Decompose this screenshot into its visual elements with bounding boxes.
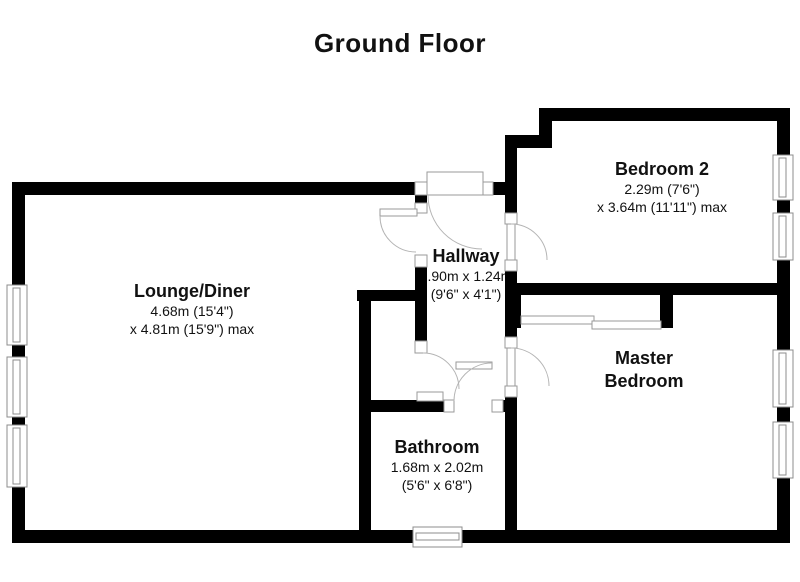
room-dimensions-line2: x 4.81m (15'9") max bbox=[130, 320, 254, 338]
room-name: Bathroom bbox=[391, 437, 484, 458]
window bbox=[773, 213, 793, 260]
room-label-bathroom: Bathroom 1.68m x 2.02m (5'6" x 6'8") bbox=[391, 437, 484, 494]
floor-plan: Ground Floor Lounge/Diner 4.68m (15'4") … bbox=[0, 0, 800, 582]
master-bedroom-door bbox=[505, 337, 549, 397]
window bbox=[7, 357, 27, 417]
window bbox=[773, 155, 793, 200]
window bbox=[773, 350, 793, 407]
bathroom-door bbox=[444, 362, 503, 412]
floor-plan-drawing bbox=[0, 0, 800, 582]
room-name: Lounge/Diner bbox=[130, 281, 254, 302]
room-dimensions-line2: (9'6" x 4'1") bbox=[420, 285, 513, 303]
room-dimensions-line1: 4.68m (15'4") bbox=[130, 302, 254, 320]
room-label-master-bedroom: Master Bedroom bbox=[594, 347, 694, 393]
room-name: Hallway bbox=[420, 246, 513, 267]
cupboard-door bbox=[415, 341, 459, 401]
room-name: Master Bedroom bbox=[594, 347, 694, 393]
room-name: Bedroom 2 bbox=[597, 159, 727, 180]
room-dimensions-line1: 2.29m (7'6") bbox=[597, 180, 727, 198]
window bbox=[773, 422, 793, 478]
room-label-lounge-diner: Lounge/Diner 4.68m (15'4") x 4.81m (15'9… bbox=[130, 281, 254, 338]
room-dimensions-line1: 1.68m x 2.02m bbox=[391, 458, 484, 476]
room-dimensions-line1: 2.90m x 1.24m bbox=[420, 267, 513, 285]
window bbox=[7, 425, 27, 487]
built-in-wardrobe bbox=[521, 316, 661, 329]
plan-title: Ground Floor bbox=[314, 28, 486, 59]
room-dimensions-line2: x 3.64m (11'11") max bbox=[597, 198, 727, 216]
window bbox=[413, 527, 462, 547]
entry-door bbox=[415, 172, 493, 249]
room-label-hallway: Hallway 2.90m x 1.24m (9'6" x 4'1") bbox=[420, 246, 513, 303]
room-dimensions-line2: (5'6" x 6'8") bbox=[391, 476, 484, 494]
room-label-bedroom-2: Bedroom 2 2.29m (7'6") x 3.64m (11'11") … bbox=[597, 159, 727, 216]
window bbox=[7, 285, 27, 345]
